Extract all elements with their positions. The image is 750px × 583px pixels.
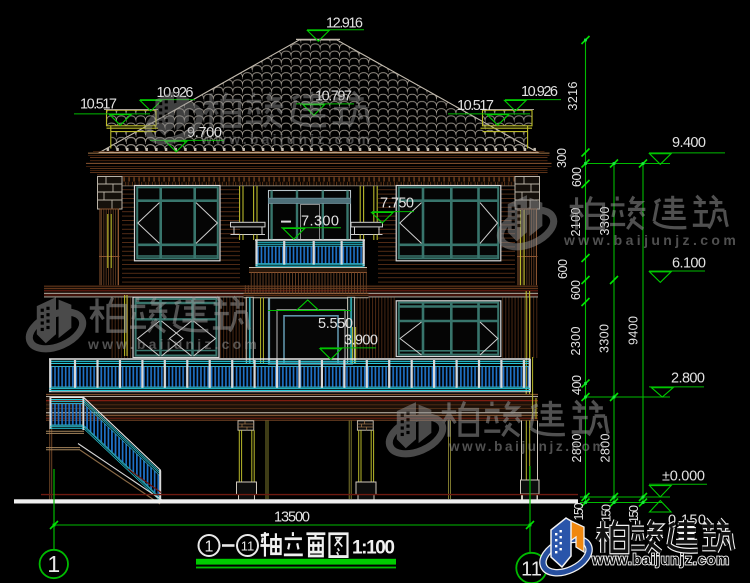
svg-text:www.baijunjz.com: www.baijunjz.com [448,439,607,454]
svg-text:7.300: 7.300 [301,214,339,230]
svg-text:±0.000: ±0.000 [662,469,705,485]
svg-text:10.517: 10.517 [80,97,117,113]
svg-text:10.517: 10.517 [457,98,494,114]
svg-text:11: 11 [241,539,255,554]
svg-text:600: 600 [569,280,583,300]
svg-text:12.916: 12.916 [326,16,363,32]
svg-text:1: 1 [47,551,60,577]
svg-text:2300: 2300 [569,326,583,355]
svg-text:13500: 13500 [274,510,310,526]
svg-text:400: 400 [570,375,584,395]
svg-text:150: 150 [627,505,641,523]
svg-text:3216: 3216 [566,81,580,110]
svg-text:5.550: 5.550 [318,316,353,332]
svg-text:1: 1 [205,539,214,556]
svg-text:150: 150 [600,504,614,522]
svg-text:7.750: 7.750 [380,196,414,212]
svg-text:150: 150 [572,502,586,520]
svg-text:10.926: 10.926 [521,84,558,100]
svg-text:9400: 9400 [627,316,641,345]
svg-text:www.baijunjz.com: www.baijunjz.com [200,131,373,147]
svg-text:1:100: 1:100 [352,538,395,559]
svg-text:www.baijunjz.com: www.baijunjz.com [87,336,260,352]
svg-text:300: 300 [555,148,569,168]
svg-text:www.baijunjz.com: www.baijunjz.com [563,232,739,248]
svg-text:9.400: 9.400 [672,135,706,151]
svg-text:6.100: 6.100 [672,256,706,272]
svg-text:www.baijunjz.com: www.baijunjz.com [591,553,730,569]
svg-text:2.800: 2.800 [671,371,705,387]
svg-text:11: 11 [521,559,542,581]
svg-text:600: 600 [556,259,570,279]
svg-text:3300: 3300 [598,324,612,353]
svg-text:3.900: 3.900 [344,333,378,349]
svg-text:600: 600 [570,167,584,187]
